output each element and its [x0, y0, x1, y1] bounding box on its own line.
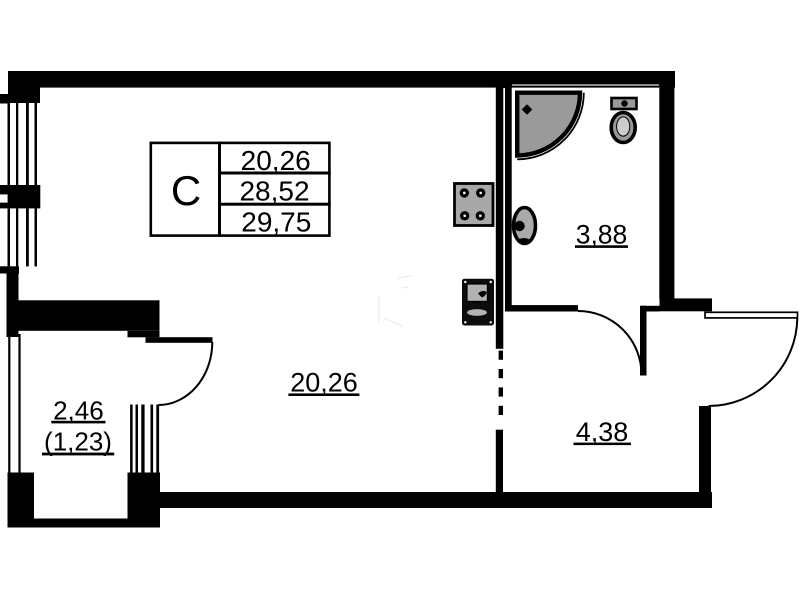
- svg-text:4,38: 4,38: [576, 417, 629, 447]
- svg-text:29,75: 29,75: [241, 207, 311, 238]
- svg-text:C: C: [171, 167, 201, 214]
- svg-text:(1,23): (1,23): [44, 427, 112, 457]
- svg-text:20,26: 20,26: [241, 145, 311, 176]
- svg-text:28,52: 28,52: [239, 175, 309, 206]
- svg-text:3,88: 3,88: [576, 220, 628, 250]
- svg-text:20,26: 20,26: [290, 368, 358, 398]
